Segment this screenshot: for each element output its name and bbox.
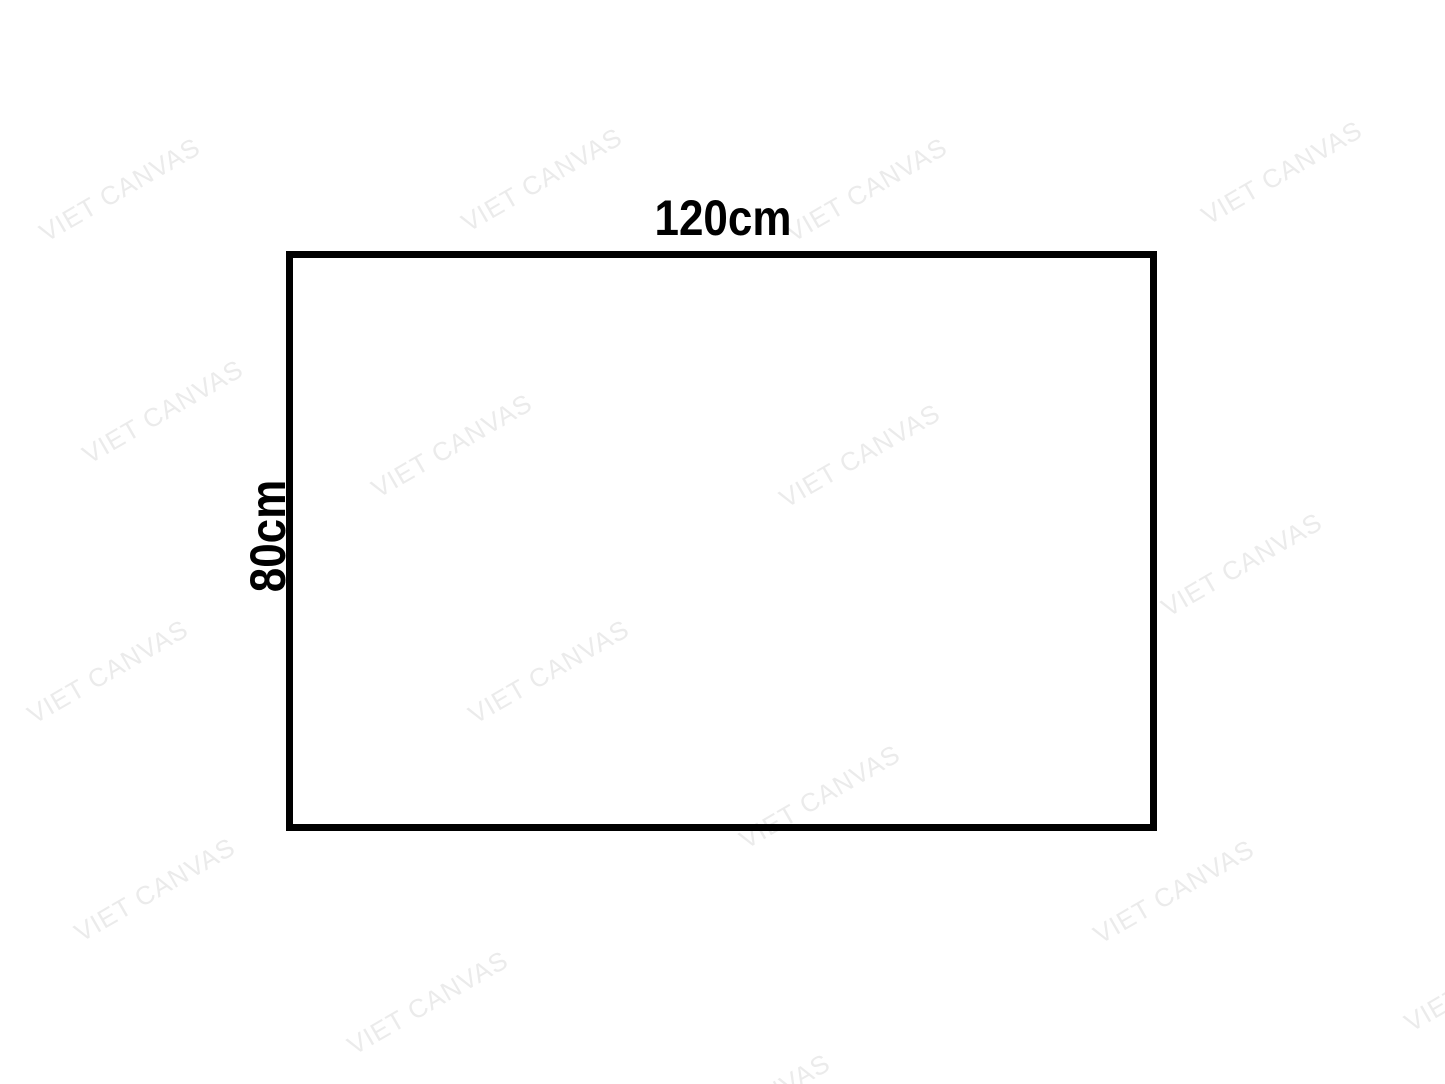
watermark-text: VIET CANVAS (69, 831, 241, 948)
watermark-text: VIET CANVAS (342, 944, 514, 1061)
watermark-text: VIET CANVAS (1399, 921, 1445, 1038)
watermark-text: VIET CANVAS (1088, 833, 1260, 950)
watermark-text: VIET CANVAS (664, 1047, 836, 1084)
height-label: 80cm (243, 480, 293, 593)
watermark-text: VIET CANVAS (1196, 114, 1368, 231)
width-label: 120cm (654, 193, 791, 243)
watermark-text: VIET CANVAS (456, 121, 628, 238)
canvas-size-diagram: VIET CANVASVIET CANVASVIET CANVASVIET CA… (0, 0, 1445, 1084)
watermark-text: VIET CANVAS (781, 131, 953, 248)
watermark-text: VIET CANVAS (77, 353, 249, 470)
canvas-rectangle (286, 251, 1157, 831)
watermark-text: VIET CANVAS (34, 131, 206, 248)
watermark-text: VIET CANVAS (1156, 506, 1328, 623)
watermark-text: VIET CANVAS (22, 613, 194, 730)
